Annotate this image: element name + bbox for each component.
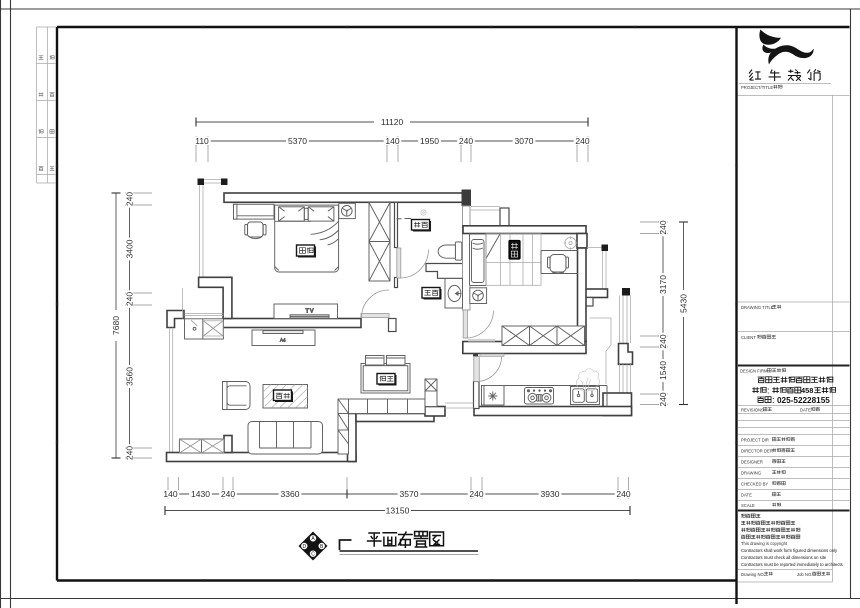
svg-text:240: 240 <box>221 489 235 499</box>
svg-text:SCALE: SCALE <box>741 503 755 508</box>
svg-text:240: 240 <box>125 446 135 460</box>
svg-text:7680: 7680 <box>111 316 121 335</box>
svg-text:110: 110 <box>195 136 209 146</box>
svg-text:240: 240 <box>469 489 483 499</box>
svg-text:240: 240 <box>125 192 135 206</box>
svg-text:240: 240 <box>658 392 668 406</box>
svg-text:Contractors must be reported i: Contractors must be reported immediately… <box>741 562 843 567</box>
svg-text:DATE: DATE <box>741 493 752 498</box>
svg-text:458: 458 <box>801 386 813 395</box>
svg-text:TV: TV <box>306 309 315 315</box>
svg-text:This drawing is copyright: This drawing is copyright <box>741 541 788 546</box>
svg-text:DRAWING TITLE: DRAWING TITLE <box>741 305 774 310</box>
svg-text:Job NO.: Job NO. <box>797 572 812 577</box>
svg-text:140: 140 <box>163 489 177 499</box>
svg-text:5430: 5430 <box>679 294 689 313</box>
svg-text:240: 240 <box>658 220 668 234</box>
svg-text:REVISIONS: REVISIONS <box>741 408 764 413</box>
svg-text:DESIGNER: DESIGNER <box>741 460 763 465</box>
svg-text:1430: 1430 <box>191 489 210 499</box>
svg-text:1950: 1950 <box>420 136 439 146</box>
svg-text:1540: 1540 <box>658 361 668 380</box>
svg-text:3170: 3170 <box>658 275 668 294</box>
svg-text:3070: 3070 <box>515 136 534 146</box>
svg-text:PROJECT DIR: PROJECT DIR <box>741 438 769 443</box>
svg-text:3560: 3560 <box>125 367 135 386</box>
svg-text:240: 240 <box>459 136 473 146</box>
svg-text:CLIENT: CLIENT <box>741 335 756 340</box>
svg-text:CHECKED BY: CHECKED BY <box>741 482 768 487</box>
svg-text:Drawing NO.: Drawing NO. <box>741 572 765 577</box>
svg-text:C: C <box>311 552 315 558</box>
svg-text:140: 140 <box>385 136 399 146</box>
svg-text:A4: A4 <box>280 338 286 343</box>
svg-text:240: 240 <box>125 292 135 306</box>
svg-text:DRAWING: DRAWING <box>741 471 761 476</box>
svg-text:D: D <box>302 544 306 550</box>
svg-text:240: 240 <box>575 136 589 146</box>
svg-text:025-52228155: 025-52228155 <box>777 396 830 405</box>
svg-text:Contractors must check all dim: Contractors must check all dimensions on… <box>741 555 827 560</box>
svg-text:DESIGN FIRM: DESIGN FIRM <box>740 369 768 374</box>
svg-text:Contractors shall work form fi: Contractors shall work form figured dime… <box>741 548 838 553</box>
svg-text:5370: 5370 <box>288 136 307 146</box>
svg-text:13150: 13150 <box>386 506 410 516</box>
svg-text:240: 240 <box>616 489 630 499</box>
svg-text:3930: 3930 <box>541 489 560 499</box>
svg-text:3570: 3570 <box>400 489 419 499</box>
svg-text:3400: 3400 <box>125 239 135 258</box>
svg-text:3360: 3360 <box>281 489 300 499</box>
svg-text:DIRECTOR DER: DIRECTOR DER <box>741 449 773 454</box>
svg-text:DATE: DATE <box>800 408 811 413</box>
svg-text:240: 240 <box>658 334 668 348</box>
svg-text:PROJECT/TITLE: PROJECT/TITLE <box>741 85 773 90</box>
svg-text:11120: 11120 <box>381 117 404 127</box>
